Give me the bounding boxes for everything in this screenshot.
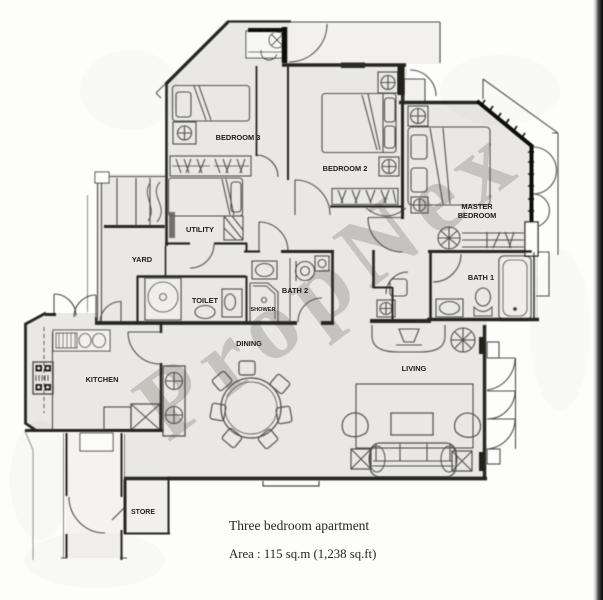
- svg-text:LIVING: LIVING: [402, 364, 427, 373]
- svg-text:Area : 115 sq.m (1,238 sq.ft): Area : 115 sq.m (1,238 sq.ft): [229, 547, 376, 561]
- svg-text:BEDROOM 3: BEDROOM 3: [216, 133, 261, 142]
- svg-text:MASTER: MASTER: [461, 202, 493, 211]
- svg-text:YARD: YARD: [132, 255, 153, 264]
- svg-text:BATH 2: BATH 2: [282, 286, 308, 295]
- svg-text:STORE: STORE: [131, 509, 155, 516]
- svg-text:UTILITY: UTILITY: [186, 225, 214, 234]
- svg-text:DINING: DINING: [236, 339, 262, 348]
- svg-text:KITCHEN: KITCHEN: [86, 375, 119, 384]
- svg-text:TOILET: TOILET: [192, 296, 219, 305]
- svg-text:Three bedroom apartment: Three bedroom apartment: [229, 518, 369, 533]
- svg-text:BATH 1: BATH 1: [468, 273, 494, 282]
- svg-text:BEDROOM: BEDROOM: [458, 211, 497, 220]
- svg-text:SHOWER: SHOWER: [250, 307, 275, 313]
- svg-text:BEDROOM 2: BEDROOM 2: [323, 164, 368, 173]
